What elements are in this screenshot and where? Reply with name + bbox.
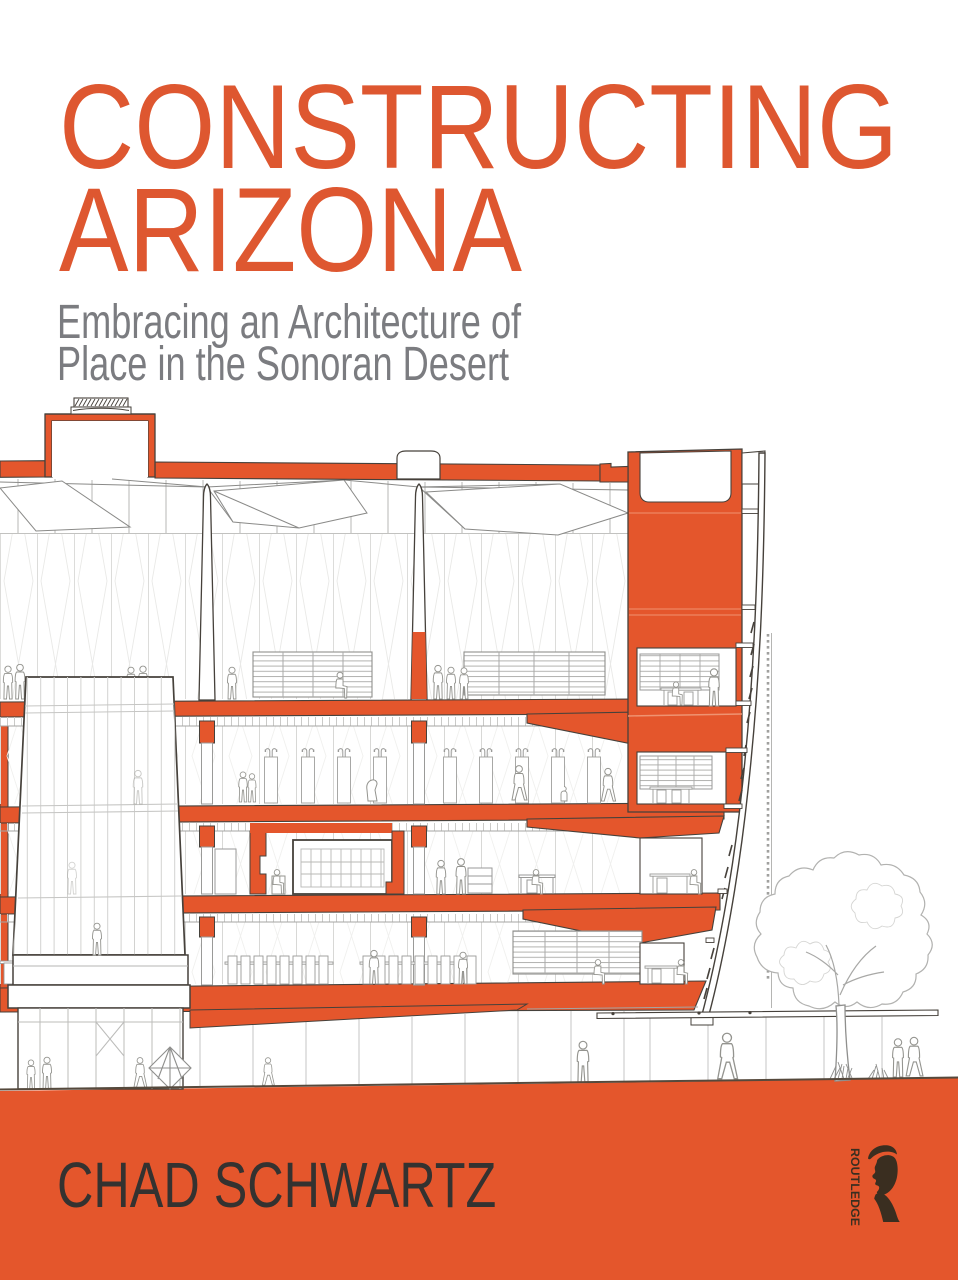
svg-text:ROUTLEDGE: ROUTLEDGE bbox=[848, 1148, 862, 1226]
